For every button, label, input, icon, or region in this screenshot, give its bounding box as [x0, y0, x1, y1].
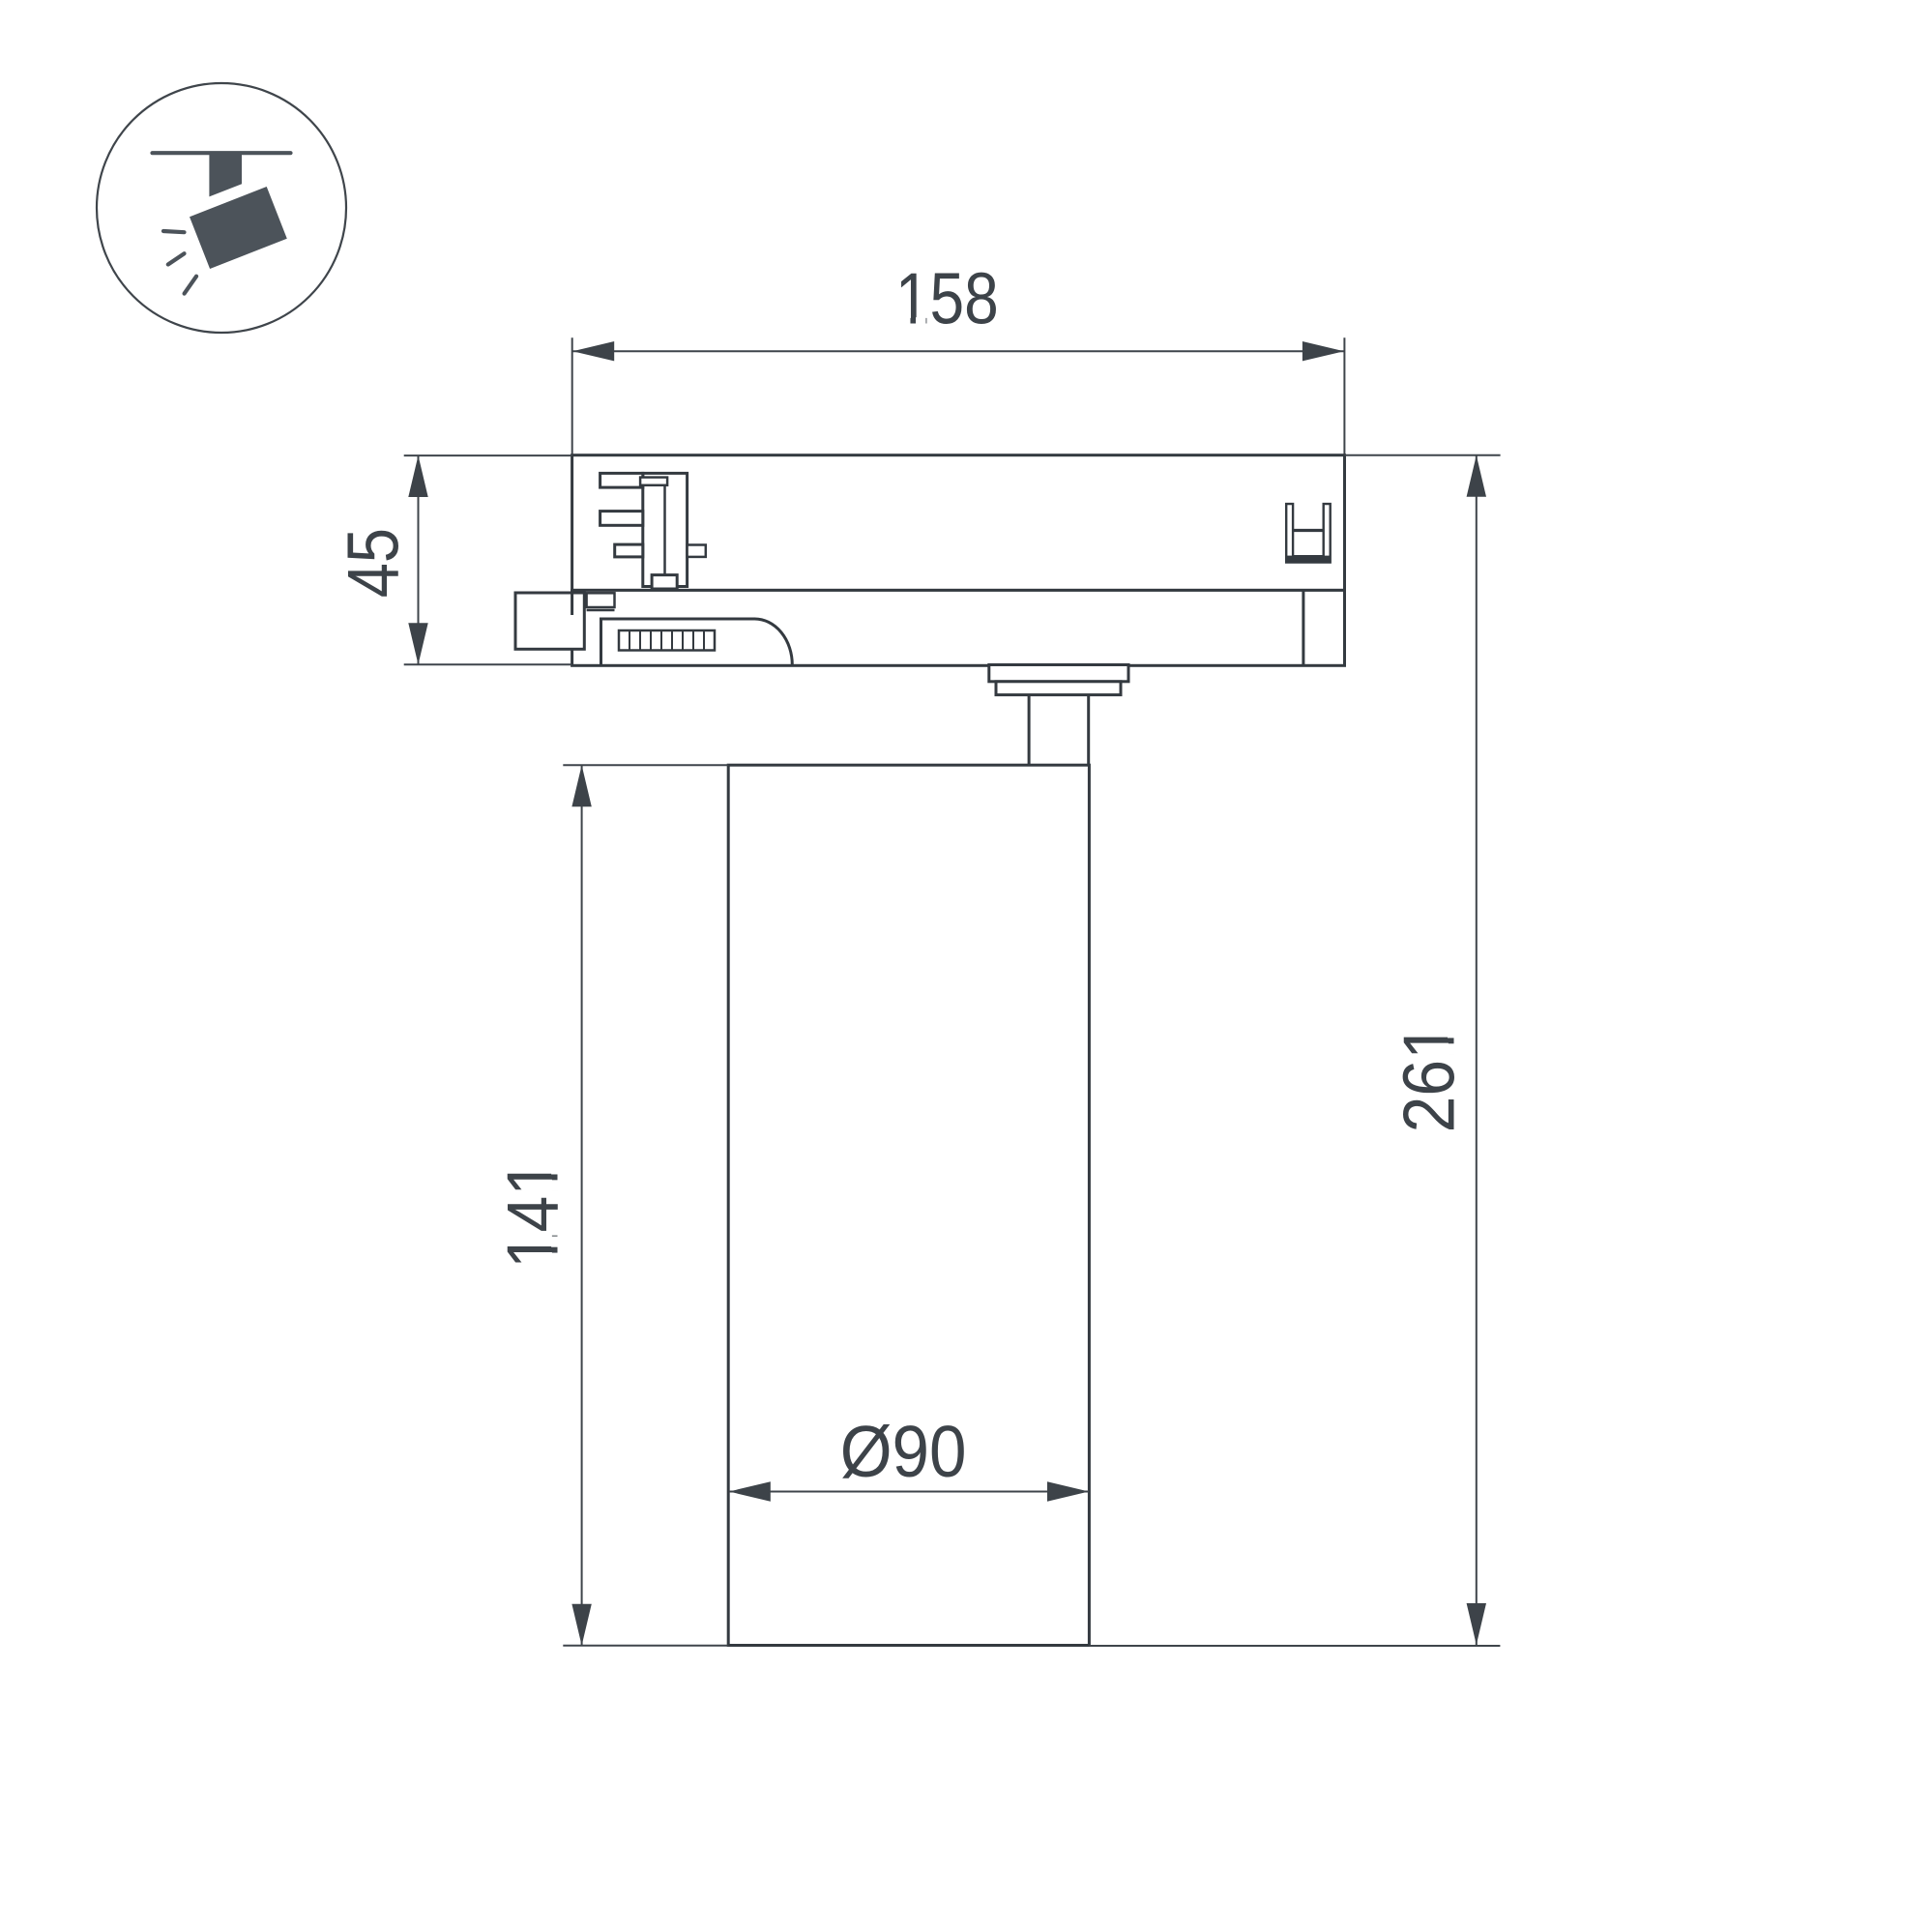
svg-text:158: 158	[895, 258, 999, 339]
svg-text:261: 261	[1389, 1023, 1470, 1132]
svg-text:141: 141	[492, 1159, 573, 1269]
svg-text:Ø90: Ø90	[840, 1412, 967, 1492]
svg-text:45: 45	[332, 528, 413, 598]
